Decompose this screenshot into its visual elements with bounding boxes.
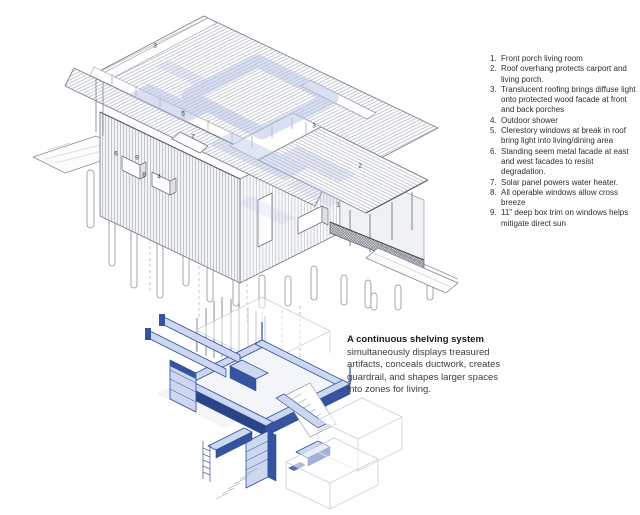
ladder: [203, 441, 210, 482]
annotation-text: Standing seem metal facade at east and w…: [501, 147, 629, 177]
label-9-box-trim: 9: [135, 155, 139, 162]
annotation-text: Translucent roofing brings diffuse light…: [501, 85, 636, 115]
shelf-stack-west: [170, 360, 196, 412]
annotation-item: 4. Outdoor shower: [488, 116, 640, 126]
annotation-list: 1. Front porch living room 2. Roof overh…: [488, 54, 640, 229]
label-2-overhang: 2: [358, 163, 362, 170]
annotation-item: 3. Translucent roofing brings diffuse li…: [488, 85, 640, 116]
annotation-item: 7. Solar panel powers water heater.: [488, 178, 640, 188]
annotation-number: 7.: [490, 178, 497, 188]
diagram-page: 3 5 7 3 2 1 6 9 8 4 1. Front porch livin…: [0, 0, 640, 515]
label-1-porch: 1: [336, 202, 340, 209]
annotation-text: Solar panel powers water heater.: [501, 178, 618, 187]
annotation-item: 2. Roof overhang protects carport and li…: [488, 64, 640, 85]
annotation-number: 9.: [490, 208, 497, 218]
annotation-text: 11" deep box trim on windows helps mitig…: [501, 208, 628, 227]
label-7-solar-panel: 7: [191, 134, 195, 141]
annotation-number: 8.: [490, 188, 497, 198]
deck-pile: [87, 170, 94, 228]
label-8-windows: 8: [142, 172, 146, 179]
annotation-number: 3.: [490, 85, 497, 95]
annotation-number: 6.: [490, 147, 497, 157]
house-exterior-axon: [33, 16, 458, 322]
label-4-shower: 4: [157, 174, 161, 181]
annotation-number: 1.: [490, 54, 497, 64]
shelving-model-axon: [145, 293, 402, 509]
label-6-facade: 6: [114, 151, 118, 158]
caption-heading: A continuous shelving system: [347, 334, 484, 345]
caption-block: A continuous shelving system simultaneou…: [347, 334, 507, 397]
label-5-clerestory: 5: [181, 111, 185, 118]
label-3-clerestory: 3: [312, 123, 316, 130]
caption-body: simultaneously displays treasured artifa…: [347, 347, 500, 396]
annotation-item: 6. Standing seem metal facade at east an…: [488, 147, 640, 178]
annotation-item: 8. All operable windows allow cross bree…: [488, 188, 640, 209]
annotation-number: 5.: [490, 126, 497, 136]
annotation-text: All operable windows allow cross breeze: [501, 188, 618, 207]
annotation-text: Roof overhang protects carport and livin…: [501, 64, 627, 83]
annotation-text: Clerestory windows at break in roof brin…: [501, 126, 626, 145]
label-3-roof: 3: [153, 43, 157, 50]
annotation-item: 1. Front porch living room: [488, 54, 640, 64]
annotation-number: 2.: [490, 64, 497, 74]
annotation-item: 9. 11" deep box trim on windows helps mi…: [488, 208, 640, 229]
annotation-text: Outdoor shower: [501, 116, 558, 125]
annotation-number: 4.: [490, 116, 497, 126]
annotation-text: Front porch living room: [501, 54, 583, 63]
annotation-item: 5. Clerestory windows at break in roof b…: [488, 126, 640, 147]
